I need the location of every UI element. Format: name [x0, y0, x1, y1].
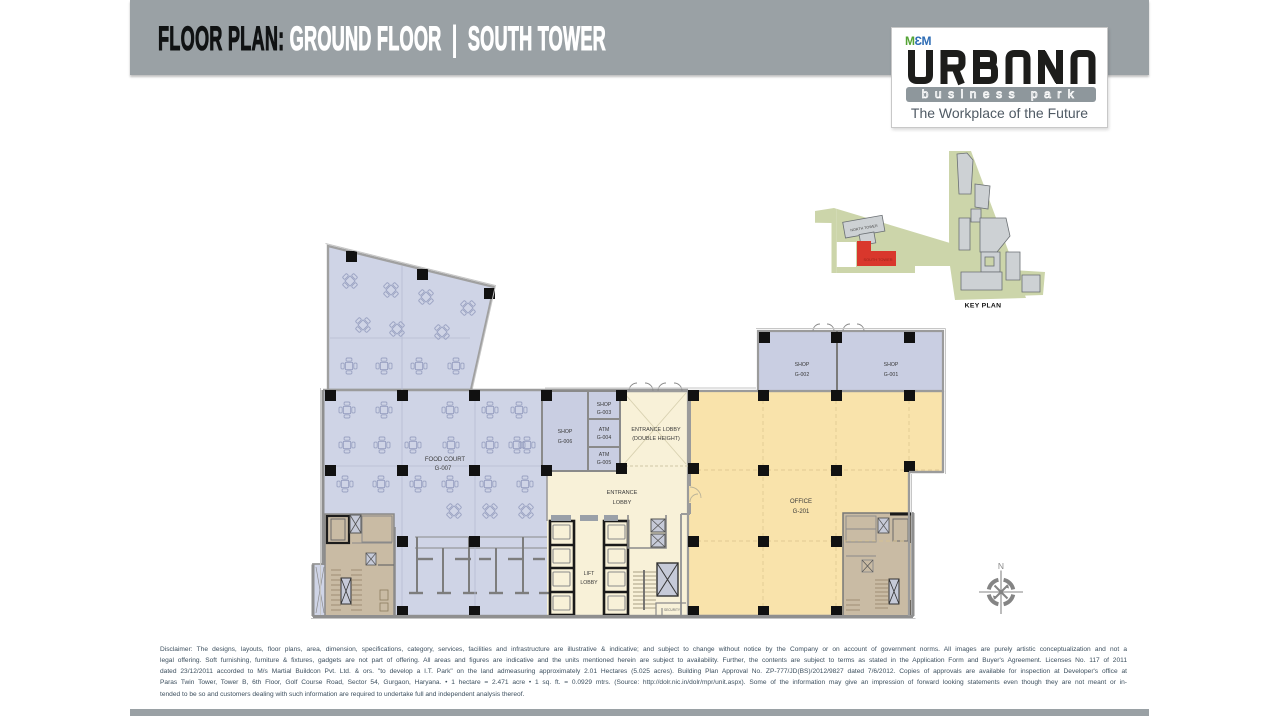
svg-text:SOUTH TOWER: SOUTH TOWER [863, 257, 892, 262]
svg-text:OFFICE: OFFICE [790, 499, 812, 505]
svg-text:G-006: G-006 [558, 439, 573, 445]
svg-text:ENTRANCE LOBBY: ENTRANCE LOBBY [631, 427, 681, 433]
svg-text:LOBBY: LOBBY [580, 580, 598, 586]
svg-text:ATM: ATM [599, 427, 610, 433]
svg-text:(DOUBLE HEIGHT): (DOUBLE HEIGHT) [632, 436, 680, 442]
svg-text:LIFT: LIFT [584, 571, 595, 577]
svg-text:LOBBY: LOBBY [613, 500, 632, 506]
svg-text:ATM: ATM [599, 452, 610, 458]
svg-text:SHOP: SHOP [558, 429, 573, 435]
svg-text:G-003: G-003 [597, 410, 612, 416]
svg-text:FOOD COURT: FOOD COURT [425, 457, 466, 463]
svg-text:G-002: G-002 [795, 372, 810, 378]
svg-text:G-001: G-001 [884, 372, 899, 378]
svg-text:SHOP: SHOP [884, 362, 899, 368]
svg-text:G-201: G-201 [793, 509, 810, 515]
svg-text:KEY PLAN: KEY PLAN [965, 303, 1002, 310]
svg-text:SHOP: SHOP [795, 362, 810, 368]
svg-text:N: N [998, 561, 1004, 571]
svg-text:G-005: G-005 [597, 460, 612, 466]
svg-text:G-007: G-007 [435, 466, 452, 472]
svg-text:ENTRANCE: ENTRANCE [607, 490, 638, 496]
svg-text:SECURITY: SECURITY [664, 608, 681, 612]
svg-text:SHOP: SHOP [597, 402, 612, 408]
svg-text:G-004: G-004 [597, 435, 612, 441]
